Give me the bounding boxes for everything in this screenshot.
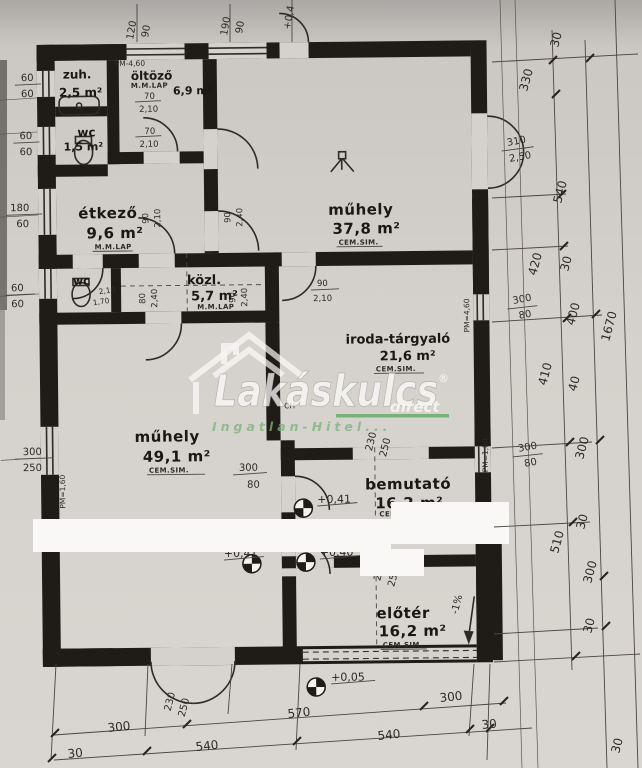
room-oltozo-area: 6,9 m² bbox=[173, 84, 213, 97]
window-dim: 180 bbox=[10, 203, 29, 214]
dim-bottom: 570 bbox=[287, 705, 311, 721]
room-eloter-area: 16,2 m² bbox=[379, 622, 447, 641]
level-mark bbox=[294, 499, 312, 517]
window-dim: 80 bbox=[247, 480, 260, 491]
registered-mark-icon: ® bbox=[438, 372, 449, 385]
room-muhely2-floor: CEM.SIM. bbox=[149, 466, 189, 474]
door-dim: 90 bbox=[223, 212, 233, 223]
room-muhely1-name: műhely bbox=[328, 200, 393, 219]
room-etkezo-floor: M.M.LAP bbox=[95, 243, 132, 251]
dim-bottom: 30 bbox=[67, 745, 84, 761]
room-muhely2-name: műhely bbox=[134, 427, 199, 446]
room-iroda-area: 21,6 m² bbox=[380, 349, 436, 365]
door-dim: 2,40 bbox=[150, 289, 160, 308]
room-muhely1-area: 37,8 m² bbox=[332, 219, 400, 238]
door-dim: 2,40 bbox=[240, 288, 250, 307]
room-zuh-area: 2,5 m² bbox=[59, 85, 102, 99]
window-dim: 60 bbox=[11, 283, 24, 294]
window-dim: 60 bbox=[20, 147, 33, 158]
door-dim: 70 bbox=[144, 127, 155, 137]
floor-plan-svg: zuh. 2,5 m² öltöző 6,9 m² M.M.LAP wc 1,5… bbox=[0, 0, 642, 768]
room-kozl-floor: M.M.LAP bbox=[197, 303, 234, 311]
dim-bottom: 540 bbox=[195, 738, 219, 754]
door-dim: 2,10 bbox=[313, 294, 332, 304]
door-dim: 2,10 bbox=[153, 209, 163, 228]
room-wc1-area: 1,5 m² bbox=[63, 140, 103, 153]
window-dim: 60 bbox=[21, 89, 34, 100]
window-dim: 300 bbox=[23, 447, 42, 458]
window-dim: 60 bbox=[11, 299, 24, 310]
parapet-note: PM=1,60 bbox=[58, 474, 67, 508]
dim-bottom: 30 bbox=[481, 716, 498, 732]
level-mark bbox=[307, 678, 325, 696]
dim-bottom: 540 bbox=[377, 727, 401, 743]
door-dim: 2,10 bbox=[139, 140, 158, 150]
door-dim: 90 bbox=[141, 213, 151, 224]
redaction-box bbox=[391, 502, 509, 544]
watermark-green-bar bbox=[336, 414, 449, 418]
window-dim: 250 bbox=[23, 463, 42, 474]
parapet-note: PM-4,60 bbox=[115, 59, 146, 68]
dim-top: 90 bbox=[140, 24, 153, 38]
room-muhely1-floor: CEM.SIM. bbox=[339, 238, 379, 246]
room-wc1-name: wc bbox=[77, 125, 95, 139]
door-dim: 80 bbox=[138, 293, 148, 304]
room-eloter-name: előtér bbox=[376, 604, 430, 623]
watermark-tagline: Ingatlan-Hitel... bbox=[212, 419, 391, 434]
room-iroda-name: iroda-tárgyaló bbox=[346, 332, 451, 348]
door-dim: 70 bbox=[144, 92, 155, 102]
scan-smudge-2 bbox=[0, 310, 5, 420]
room-etkezo-area: 9,6 m² bbox=[86, 224, 143, 243]
door-dim: 2,10 bbox=[139, 105, 158, 115]
window-dim: 60 bbox=[19, 131, 32, 142]
room-oltozo-floor: M.M.LAP bbox=[131, 82, 168, 90]
door-dim: 90 bbox=[317, 279, 328, 289]
window-dim: 60 bbox=[16, 219, 29, 230]
dim-bottom: 300 bbox=[439, 689, 463, 705]
room-wc2-name: wc bbox=[73, 274, 90, 287]
redaction-box bbox=[360, 549, 424, 576]
dim-bottom: 300 bbox=[107, 719, 131, 735]
room-etkezo-name: étkező bbox=[78, 204, 137, 223]
parapet-note: PM=4,60 bbox=[462, 298, 471, 332]
room-muhely2-area: 49,1 m² bbox=[143, 447, 211, 466]
window-dim: 60 bbox=[21, 73, 34, 84]
scan-smudge bbox=[0, 60, 7, 310]
window-dim: 80 bbox=[523, 457, 538, 470]
room-eloter-floor: CEM.SIM. bbox=[383, 641, 423, 649]
room-zuh-name: zuh. bbox=[63, 67, 92, 81]
room-bemutato-name: bemutató bbox=[365, 475, 451, 494]
door-dim: 90 bbox=[228, 292, 238, 303]
parapet-note: PM=1,80 bbox=[481, 438, 490, 472]
window-dim: 300 bbox=[239, 463, 258, 474]
room-kozl-name: közl. bbox=[187, 273, 221, 288]
level-mark bbox=[297, 553, 315, 571]
door-dim: 2,40 bbox=[235, 208, 245, 227]
watermark-direct: direct bbox=[390, 398, 440, 416]
redaction-box bbox=[33, 519, 391, 552]
dim-top: 90 bbox=[234, 20, 247, 34]
scanned-floor-plan: zuh. 2,5 m² öltöző 6,9 m² M.M.LAP wc 1,5… bbox=[0, 0, 642, 768]
